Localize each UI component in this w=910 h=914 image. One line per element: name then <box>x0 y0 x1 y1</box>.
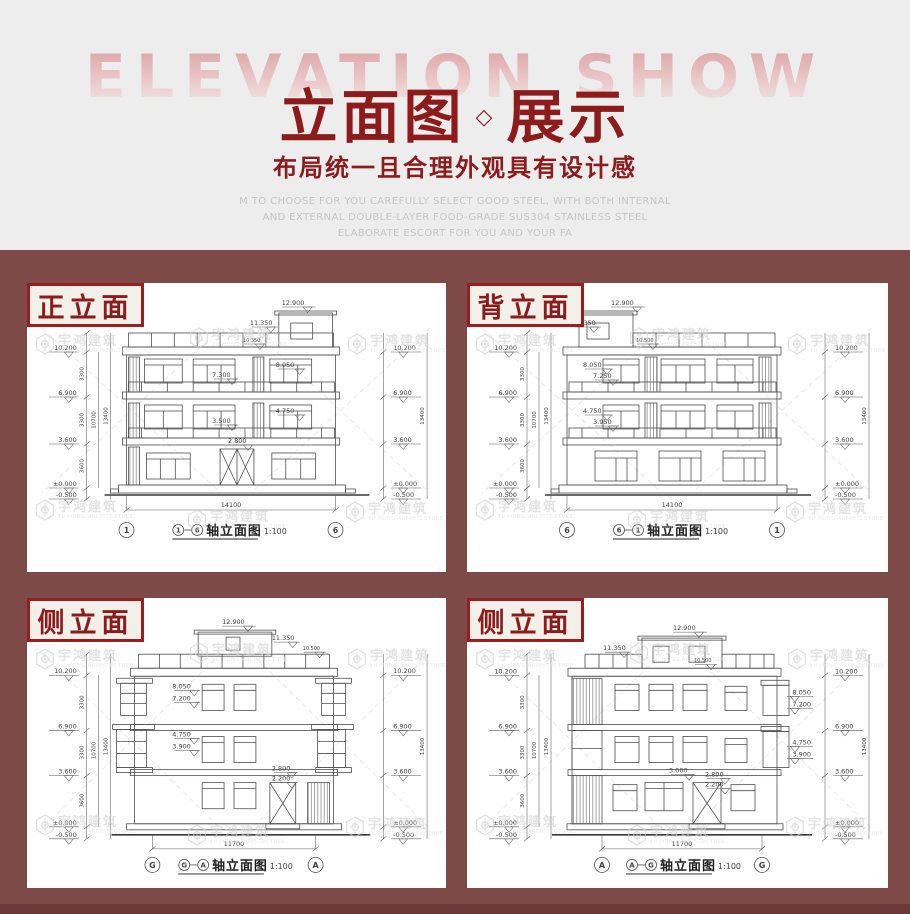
dim-label: 3300 <box>520 745 526 760</box>
dim-label: 3300 <box>80 413 86 427</box>
level-label: -0.500 <box>496 831 517 839</box>
mark-label: 8.050 <box>583 361 602 369</box>
total-width-label: 14100 <box>662 501 683 509</box>
dim-label: 13400 <box>544 737 550 755</box>
dim-label: 3300 <box>520 367 526 381</box>
badge-side-elevation-ag: 侧立面 <box>467 598 584 642</box>
level-label: 6.900 <box>498 389 517 397</box>
caption-title: 轴立面图 <box>212 858 268 874</box>
bottom-strip <box>0 904 910 914</box>
dimensions-front: 10.200 6.900 3.600 ±0.000 -0.500 3300 33… <box>49 299 427 513</box>
dim-label: 10700 <box>532 741 538 759</box>
level-label: -0.500 <box>835 491 856 499</box>
dim-label: 13400 <box>104 407 110 425</box>
dim-label: 13400 <box>862 407 868 425</box>
caption-axis-left: G <box>181 861 187 869</box>
level-label: 6.900 <box>58 389 76 397</box>
dimensions-side-ga: 10.200 6.900 3.600 ±0.000 -0.500 3300 33… <box>49 618 427 851</box>
hero-description: M TO CHOOSE FOR YOU CAREFULLY SELECT GOO… <box>0 194 910 242</box>
level-label: 3.600 <box>835 768 854 776</box>
level-label: 3.600 <box>393 436 411 444</box>
page-title: 立面图◇展示 <box>0 70 910 154</box>
axis-bubble-right: 1 <box>774 526 780 535</box>
badge-label: 正立面 <box>38 286 134 325</box>
mark-label: 2.200 <box>272 775 291 783</box>
mark-label: 3.900 <box>172 742 191 750</box>
panel-front-elevation: 10.200 6.900 3.600 ±0.000 -0.500 3300 33… <box>27 283 446 572</box>
building-back <box>545 311 811 495</box>
building-side-ag <box>552 636 812 835</box>
level-label: -0.500 <box>56 491 77 499</box>
dimensions-side-ag: 10.200 6.900 3.600 ±0.000 -0.500 3300 33… <box>489 624 869 851</box>
level-label: 6.900 <box>58 722 77 730</box>
panel-side-elevation-ag: 10.200 6.900 3.600 ±0.000 -0.500 3300 33… <box>467 598 888 888</box>
page-subtitle: 布局统一且合理外观具有设计感 <box>0 148 910 183</box>
level-label: 10.200 <box>393 667 416 675</box>
dim-label: 3300 <box>80 367 86 381</box>
dim-label: 3300 <box>520 695 526 710</box>
desc-line-2: AND EXTERNAL DOUBLE-LAYER FOOD-GRADE SUS… <box>0 210 910 226</box>
caption-title: 轴立面图 <box>660 858 716 874</box>
mark-label: 8.050 <box>792 688 811 696</box>
level-label: 10.200 <box>835 344 858 352</box>
level-label: 6.900 <box>393 722 412 730</box>
caption-axis-right: 1 <box>636 527 641 535</box>
badge-side-elevation-ga: 侧立面 <box>27 598 144 642</box>
level-label: ±0.000 <box>493 480 517 488</box>
dim-label: 13400 <box>104 737 110 755</box>
level-label: 3.600 <box>393 768 412 776</box>
level-label: 3.600 <box>58 768 77 776</box>
mark-label: 12.900 <box>222 618 245 626</box>
level-label: 10.200 <box>54 667 77 675</box>
caption-axis-left: 6 <box>617 527 622 535</box>
mark-label: 3.900 <box>792 751 811 759</box>
level-label: ±0.000 <box>393 480 417 488</box>
mark-label: 4.750 <box>583 407 602 415</box>
mark-label: 7.200 <box>172 694 191 702</box>
axis-bubble-right: 6 <box>333 526 339 535</box>
mark-label: 8.050 <box>276 361 294 369</box>
mark-label: 11.350 <box>272 634 295 642</box>
caption-axis-left: 1 <box>176 526 181 534</box>
caption-axis-right: A <box>200 861 206 869</box>
level-label: 3.600 <box>58 436 76 444</box>
caption-title: 轴立面图 <box>206 523 262 539</box>
level-label: -0.500 <box>393 491 414 499</box>
mark-label: 4.750 <box>172 730 191 738</box>
axis-bubble-left: A <box>599 861 606 870</box>
mark-label: 4.750 <box>792 738 811 746</box>
level-label: 3.600 <box>835 436 854 444</box>
mark-label: 7.200 <box>792 700 811 708</box>
building-front <box>105 311 370 495</box>
badge-label: 背立面 <box>478 286 574 325</box>
mark-label: 3.950 <box>593 418 612 426</box>
mark-label: 7.250 <box>593 372 612 380</box>
title-diamond-icon: ◇ <box>466 105 507 130</box>
caption-scale: 1:100 <box>270 862 293 871</box>
level-label: ±0.000 <box>393 819 417 827</box>
level-label: 3.600 <box>498 436 517 444</box>
caption-scale: 1:100 <box>705 527 728 536</box>
axis-bubble-right: G <box>759 861 766 870</box>
dim-label: 3600 <box>80 459 86 473</box>
caption-scale: 1:100 <box>718 862 741 871</box>
desc-line-3: ELABORATE ESCORT FOR YOU AND YOUR FA <box>0 226 910 242</box>
badge-back-elevation: 背立面 <box>467 283 584 327</box>
level-label: 10.200 <box>494 667 517 675</box>
building-side-ga <box>112 630 371 835</box>
dimensions-back: 10.200 6.900 3.600 ±0.000 -0.500 3300 33… <box>489 299 869 513</box>
level-label: 10.200 <box>54 344 77 352</box>
total-width-label: 14100 <box>221 501 242 509</box>
dim-label: 13400 <box>862 737 868 755</box>
mark-label: 10.350 <box>243 338 260 344</box>
mark-label: 2.800 <box>228 437 246 445</box>
mark-label: 2.200 <box>705 781 724 789</box>
badge-label: 侧立面 <box>478 601 574 640</box>
level-label: 10.200 <box>835 667 858 675</box>
mark-label: 7.300 <box>212 371 230 379</box>
mark-label: 12.900 <box>673 624 696 632</box>
axis-bubble-left: G <box>149 861 156 870</box>
dim-label: 13400 <box>544 407 550 425</box>
dim-label: 3300 <box>520 413 526 427</box>
dim-label: 3600 <box>520 459 526 473</box>
level-label: -0.500 <box>393 831 414 839</box>
dim-label: 10700 <box>92 411 98 429</box>
mark-label: 12.900 <box>282 299 305 307</box>
dim-label: 10700 <box>92 741 98 759</box>
level-label: ±0.000 <box>835 819 859 827</box>
total-width-label: 11700 <box>672 840 693 848</box>
dim-label: 3300 <box>80 745 86 760</box>
level-label: 6.900 <box>393 389 411 397</box>
mark-label: 3.500 <box>212 417 230 425</box>
total-width-label: 11700 <box>224 840 245 848</box>
panel-back-elevation: 10.200 6.900 3.600 ±0.000 -0.500 3300 33… <box>467 283 888 572</box>
mark-label: 10.500 <box>636 338 654 344</box>
caption-scale: 1:100 <box>264 527 287 536</box>
dim-label: 13400 <box>420 737 426 755</box>
mark-label: 4.750 <box>276 407 294 415</box>
caption-axis-left: A <box>629 860 635 869</box>
level-label: ±0.000 <box>53 819 77 827</box>
hero-header: ELEVATION SHOW 立面图◇展示 布局统一且合理外观具有设计感 M T… <box>0 0 910 250</box>
axis-bubble-left: 6 <box>564 526 570 535</box>
product-detail-poster: { "colors":{"bg_top":"#ededed","bg_botto… <box>0 0 910 914</box>
desc-line-1: M TO CHOOSE FOR YOU CAREFULLY SELECT GOO… <box>0 194 910 210</box>
caption-axis-right: G <box>648 860 654 869</box>
mark-label: 2.800 <box>272 765 291 773</box>
level-label: 3.600 <box>498 768 517 776</box>
mark-label: 12.900 <box>611 299 634 307</box>
dim-label: 10700 <box>532 411 538 429</box>
mark-label: 8.050 <box>172 682 191 690</box>
level-label: 6.900 <box>835 389 854 397</box>
badge-label: 侧立面 <box>38 601 134 640</box>
mark-label: 11.350 <box>603 644 626 652</box>
level-label: ±0.000 <box>493 819 517 827</box>
level-label: 6.900 <box>498 722 517 730</box>
mark-label: 3.000 <box>669 767 688 775</box>
badge-front-elevation: 正立面 <box>27 283 144 327</box>
dim-label: 3300 <box>80 695 86 710</box>
level-label: -0.500 <box>56 831 77 839</box>
level-label: 6.900 <box>835 722 854 730</box>
level-label: ±0.000 <box>835 480 859 488</box>
caption-axis-right: 6 <box>195 526 200 534</box>
mark-label: 11.350 <box>250 319 273 327</box>
panel-side-elevation-ga: 10.200 6.900 3.600 ±0.000 -0.500 3300 33… <box>27 598 446 888</box>
axis-bubble-right: A <box>313 861 320 870</box>
level-label: 10.200 <box>494 344 517 352</box>
mark-label: 10.500 <box>694 658 711 664</box>
mark-label: 10.500 <box>303 646 320 652</box>
dim-label: 13400 <box>420 407 426 425</box>
level-label: 10.200 <box>393 344 416 352</box>
level-label: -0.500 <box>496 491 517 499</box>
dim-label: 3600 <box>80 793 86 808</box>
level-label: ±0.000 <box>53 480 77 488</box>
level-label: -0.500 <box>835 831 856 839</box>
axis-bubble-left: 1 <box>124 526 130 535</box>
mark-label: 2.800 <box>705 771 724 779</box>
dim-label: 3600 <box>520 793 526 808</box>
caption-title: 轴立面图 <box>647 523 703 539</box>
